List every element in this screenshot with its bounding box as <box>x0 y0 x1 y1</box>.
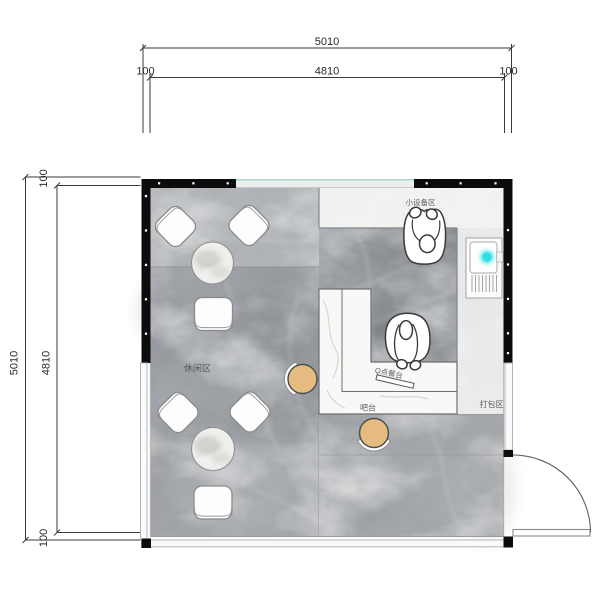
svg-text:100: 100 <box>38 529 50 547</box>
svg-text:100: 100 <box>499 66 517 78</box>
svg-text:4810: 4810 <box>315 66 339 78</box>
svg-text:100: 100 <box>38 169 50 187</box>
svg-text:5010: 5010 <box>315 36 339 48</box>
svg-text:小设备区: 小设备区 <box>406 197 436 207</box>
svg-text:休闲区: 休闲区 <box>184 363 211 374</box>
svg-text:打包区: 打包区 <box>480 399 504 409</box>
svg-text:5010: 5010 <box>9 351 21 375</box>
svg-text:4810: 4810 <box>41 351 53 375</box>
svg-text:吧台: 吧台 <box>360 403 376 413</box>
svg-text:100: 100 <box>136 66 154 78</box>
